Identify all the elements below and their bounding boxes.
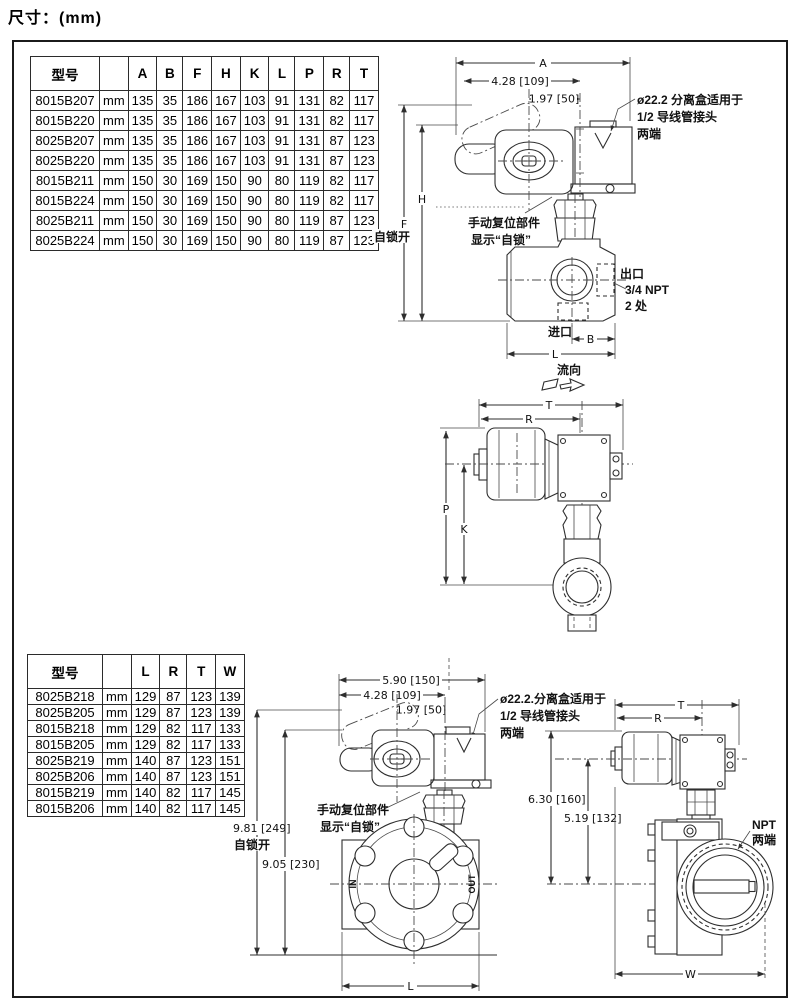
unit-cell: mm (103, 801, 132, 817)
value-cell: 119 (295, 211, 324, 231)
dim-w-label: W (685, 968, 696, 981)
value-cell: 91 (269, 151, 295, 171)
table-row: 8015B218mm12982117133 (28, 721, 245, 737)
value-cell: 103 (240, 131, 269, 151)
npt-label: NPT (752, 818, 777, 832)
content-frame: 型号ABFHKLPRT8015B207mm1353518616710391131… (12, 40, 788, 998)
value-cell: 91 (269, 91, 295, 111)
solenoid-enclosure (495, 89, 573, 210)
value-cell: 140 (131, 801, 160, 817)
model-cell: 8025B207 (31, 131, 100, 151)
dimension-4-28: 4.28 [109] (464, 74, 580, 88)
unit-cell: mm (103, 721, 132, 737)
dimension-table-bottom: 型号LRTW8025B218mm129871231398025B205mm129… (27, 654, 245, 817)
table-row: 8015B211mm15030169150908011982117 (31, 171, 379, 191)
dimension-P: P (440, 428, 485, 584)
pipe-hex-fitting-side (563, 505, 601, 539)
value-cell: 135 (128, 91, 157, 111)
value-cell: 123 (187, 769, 216, 785)
value-cell: 82 (324, 91, 350, 111)
model-cell: 8025B220 (31, 151, 100, 171)
outlet-places-label: 2 处 (625, 298, 648, 313)
value-cell: 82 (160, 737, 187, 753)
unit-cell: mm (103, 689, 132, 705)
unit-cell: mm (103, 705, 132, 721)
value-cell: 117 (187, 785, 216, 801)
value-cell: 87 (160, 689, 187, 705)
column-header (103, 655, 132, 689)
column-header: T (187, 655, 216, 689)
model-cell: 8025B218 (28, 689, 103, 705)
table-row: 8025B206mm14087123151 (28, 769, 245, 785)
value-cell: 87 (160, 705, 187, 721)
manual-reset-line1: 手动复位部件 (317, 802, 389, 817)
model-cell: 8015B219 (28, 785, 103, 801)
dimension-R: R (617, 712, 702, 725)
model-cell: 8015B205 (28, 737, 103, 753)
value-cell: 123 (187, 753, 216, 769)
value-cell: 103 (240, 151, 269, 171)
unit-cell: mm (100, 171, 129, 191)
column-header: 型号 (28, 655, 103, 689)
value-cell: 80 (269, 171, 295, 191)
dimension-F: F 自锁开 (372, 105, 510, 321)
value-cell: 91 (269, 111, 295, 131)
unit-cell: mm (103, 785, 132, 801)
dimension-4-28: 4.28 [109] (339, 688, 445, 702)
value-cell: 150 (212, 231, 241, 251)
value-cell: 30 (157, 231, 183, 251)
value-cell: 91 (269, 131, 295, 151)
table-row: 8025B211mm15030169150908011987123 (31, 211, 379, 231)
value-cell: 35 (157, 151, 183, 171)
selflock-open-label: 自锁开 (374, 229, 410, 244)
model-cell: 8015B220 (31, 111, 100, 131)
value-cell: 123 (187, 689, 216, 705)
column-header: 型号 (31, 57, 100, 91)
dim-197-label: 1.97 [50] (529, 93, 580, 106)
value-cell: 80 (269, 211, 295, 231)
value-cell: 119 (295, 231, 324, 251)
npt-both-ends-label: 两端 (752, 832, 776, 847)
unit-cell: mm (100, 111, 129, 131)
page-title: 尺寸：(mm) (8, 4, 102, 28)
valve-body-side (553, 539, 611, 631)
dim-h-label: H (418, 193, 426, 206)
drawing-top-side-view: T R P K (437, 397, 742, 642)
model-cell: 8025B224 (31, 231, 100, 251)
unit-cell: mm (103, 753, 132, 769)
dimension-1-97: 1.97 [50] (529, 92, 580, 106)
model-cell: 8015B224 (31, 191, 100, 211)
value-cell: 87 (324, 231, 350, 251)
manual-reset-line2: 显示“自锁” (320, 819, 380, 834)
dim-r-label: R (654, 712, 662, 725)
model-cell: 8015B218 (28, 721, 103, 737)
column-header: K (240, 57, 269, 91)
table-row: 8015B219mm14082117145 (28, 785, 245, 801)
value-cell: 82 (324, 111, 350, 131)
value-cell: 131 (295, 151, 324, 171)
value-cell: 87 (160, 753, 187, 769)
conduit-note-line3: 两端 (637, 126, 661, 141)
value-cell: 167 (212, 111, 241, 131)
table-row: 8015B207mm135351861671039113182117 (31, 91, 379, 111)
dimension-5-19: 5.19 [132] (562, 759, 622, 884)
value-cell: 80 (269, 191, 295, 211)
value-cell: 135 (128, 131, 157, 151)
value-cell: 167 (212, 91, 241, 111)
dim-t-label: T (677, 699, 685, 712)
value-cell: 150 (212, 171, 241, 191)
value-cell: 140 (131, 785, 160, 801)
dim-l-label: L (552, 348, 559, 361)
conduit-note-line1: ø22.2 分离盒适用于 (637, 92, 743, 107)
value-cell: 87 (324, 131, 350, 151)
column-header: R (324, 57, 350, 91)
value-cell: 82 (324, 191, 350, 211)
column-header: R (160, 655, 187, 689)
dim-t-label: T (545, 399, 553, 412)
value-cell: 150 (128, 191, 157, 211)
value-cell: 119 (295, 171, 324, 191)
value-cell: 123 (187, 705, 216, 721)
dim-428-label: 4.28 [109] (363, 689, 421, 702)
pipe-hex-fitting-side (687, 790, 715, 822)
value-cell: 167 (212, 131, 241, 151)
table-row: 8015B224mm15030169150908011982117 (31, 191, 379, 211)
drawing-top-front-view: A 4.28 [109] 1.97 [50] H F 自锁开 (372, 47, 797, 397)
value-cell: 169 (183, 171, 212, 191)
column-header: L (131, 655, 160, 689)
outlet-npt-label: 3/4 NPT (625, 283, 670, 297)
value-cell: 129 (131, 737, 160, 753)
value-cell: 30 (157, 191, 183, 211)
value-cell: 103 (240, 91, 269, 111)
value-cell: 30 (157, 211, 183, 231)
value-cell: 140 (131, 769, 160, 785)
dim-a-label: A (539, 57, 547, 70)
dim-r-label: R (525, 413, 533, 426)
unit-cell: mm (100, 211, 129, 231)
value-cell: 131 (295, 91, 324, 111)
value-cell: 87 (324, 211, 350, 231)
unit-cell: mm (100, 131, 129, 151)
unit-cell: mm (103, 737, 132, 753)
value-cell: 129 (131, 721, 160, 737)
junction-box-side (558, 435, 622, 501)
dim-l-label: L (407, 980, 414, 993)
manual-reset-note: 手动复位部件 显示“自锁” (436, 197, 552, 247)
value-cell: 90 (240, 211, 269, 231)
outlet-label: 出口 (620, 266, 644, 281)
column-header: P (295, 57, 324, 91)
column-header: F (183, 57, 212, 91)
manual-reset-line2: 显示“自锁” (471, 232, 531, 247)
value-cell: 186 (183, 91, 212, 111)
model-cell: 8015B211 (31, 171, 100, 191)
out-port-label: OUT (467, 874, 477, 894)
value-cell: 35 (157, 111, 183, 131)
model-cell: 8015B207 (31, 91, 100, 111)
value-cell: 186 (183, 151, 212, 171)
valve-body (498, 239, 628, 327)
table-row: 8025B205mm12987123139 (28, 705, 245, 721)
column-header: H (212, 57, 241, 91)
value-cell: 117 (187, 801, 216, 817)
dim-905-label: 9.05 [230] (262, 858, 320, 871)
dimension-table-top: 型号ABFHKLPRT8015B207mm1353518616710391131… (30, 56, 379, 251)
value-cell: 167 (212, 151, 241, 171)
value-cell: 80 (269, 231, 295, 251)
solenoid-enclosure-side (611, 732, 672, 784)
in-port-label: IN (348, 880, 358, 889)
value-cell: 129 (131, 689, 160, 705)
table-row: 8025B219mm14087123151 (28, 753, 245, 769)
value-cell: 82 (324, 171, 350, 191)
table-row: 8015B205mm12982117133 (28, 737, 245, 753)
dim-630-label: 6.30 [160] (528, 793, 586, 806)
value-cell: 140 (131, 753, 160, 769)
unit-cell: mm (100, 91, 129, 111)
table-row: 8015B206mm14082117145 (28, 801, 245, 817)
selflock-open-label: 自锁开 (234, 837, 270, 852)
value-cell: 90 (240, 191, 269, 211)
model-cell: 8025B219 (28, 753, 103, 769)
column-header: A (128, 57, 157, 91)
unit-cell: mm (100, 151, 129, 171)
column-header (100, 57, 129, 91)
value-cell: 186 (183, 111, 212, 131)
table-row: 8025B207mm135351861671039113187123 (31, 131, 379, 151)
junction-box (571, 93, 635, 197)
dim-590-label: 5.90 [150] (382, 674, 440, 687)
value-cell: 150 (212, 191, 241, 211)
value-cell: 131 (295, 131, 324, 151)
dim-981-label: 9.81 [249] (233, 822, 291, 835)
manual-reset-line1: 手动复位部件 (468, 215, 540, 230)
value-cell: 117 (187, 721, 216, 737)
model-cell: 8015B206 (28, 801, 103, 817)
value-cell: 119 (295, 191, 324, 211)
dimension-1-97: 1.97 [50] (396, 658, 449, 717)
unit-cell: mm (100, 191, 129, 211)
junction-box-side (680, 735, 735, 789)
value-cell: 150 (212, 211, 241, 231)
model-cell: 8025B211 (31, 211, 100, 231)
column-header: B (157, 57, 183, 91)
value-cell: 87 (324, 151, 350, 171)
value-cell: 90 (240, 171, 269, 191)
dim-428-label: 4.28 [109] (491, 75, 549, 88)
value-cell: 103 (240, 111, 269, 131)
value-cell: 82 (160, 801, 187, 817)
flow-direction: 流向 (542, 362, 584, 391)
dimension-H: H (415, 125, 458, 321)
valve-flange-body: IN OUT (330, 814, 498, 964)
value-cell: 169 (183, 211, 212, 231)
value-cell: 30 (157, 171, 183, 191)
table-row: 8025B218mm12987123139 (28, 689, 245, 705)
value-cell: 82 (160, 785, 187, 801)
dimension-6-30: 6.30 [160] (526, 731, 622, 884)
value-cell: 186 (183, 131, 212, 151)
model-cell: 8025B205 (28, 705, 103, 721)
value-cell: 150 (128, 211, 157, 231)
table-row: 8025B224mm15030169150908011987123 (31, 231, 379, 251)
datasheet-page: { "page": { "title": "尺寸：(mm)" }, "table… (0, 0, 800, 1006)
outlet-note: 出口 3/4 NPT 2 处 (614, 266, 670, 313)
dim-p-label: P (443, 503, 450, 516)
table-row: 8015B220mm135351861671039113182117 (31, 111, 379, 131)
value-cell: 131 (295, 111, 324, 131)
unit-cell: mm (103, 769, 132, 785)
table-row: 8025B220mm135351861671039113187123 (31, 151, 379, 171)
dim-b-label: B (587, 333, 595, 346)
model-cell: 8025B206 (28, 769, 103, 785)
dim-k-label: K (460, 523, 468, 536)
value-cell: 135 (128, 111, 157, 131)
value-cell: 129 (131, 705, 160, 721)
unit-cell: mm (100, 231, 129, 251)
header-row: 型号ABFHKLPRT (31, 57, 379, 91)
value-cell: 117 (187, 737, 216, 753)
header-row: 型号LRTW (28, 655, 245, 689)
inlet-label: 进口 (548, 324, 572, 339)
value-cell: 169 (183, 231, 212, 251)
dim-519-label: 5.19 [132] (564, 812, 622, 825)
value-cell: 135 (128, 151, 157, 171)
value-cell: 87 (160, 769, 187, 785)
value-cell: 150 (128, 231, 157, 251)
dim-197-label: 1.97 [50] (396, 704, 447, 717)
value-cell: 90 (240, 231, 269, 251)
value-cell: 35 (157, 91, 183, 111)
column-header: L (269, 57, 295, 91)
value-cell: 82 (160, 721, 187, 737)
drawing-bottom-side-view: T R 6.30 [160] (507, 692, 797, 997)
conduit-note-line2: 1/2 导线管接头 (637, 109, 717, 124)
value-cell: 35 (157, 131, 183, 151)
flow-label: 流向 (557, 362, 581, 377)
value-cell: 169 (183, 191, 212, 211)
flow-arrow-icon (542, 379, 558, 390)
value-cell: 150 (128, 171, 157, 191)
